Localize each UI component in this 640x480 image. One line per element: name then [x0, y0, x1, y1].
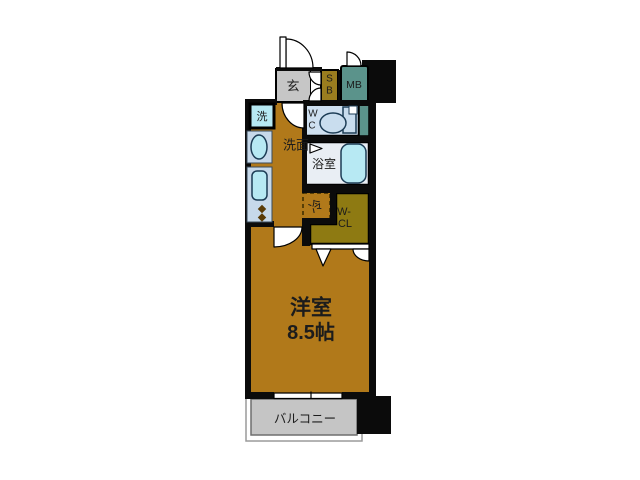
toilet-bowl — [320, 113, 346, 133]
wall-bottom-left — [245, 392, 274, 399]
meterbox-door-arc — [347, 52, 361, 66]
wall-fridge-right — [330, 193, 336, 220]
wall-wc-bath — [303, 136, 369, 142]
label-washroom: 洗面 — [283, 138, 309, 153]
closet-door-track — [312, 244, 369, 249]
black-block-bottom-right — [357, 396, 391, 434]
vanity-sink — [251, 135, 267, 159]
label-wc-c: C — [308, 121, 315, 132]
wall-right — [369, 102, 376, 399]
entrance-door-arc — [286, 39, 313, 68]
kitchen-sink — [252, 171, 267, 200]
toilet-flush-button — [349, 106, 357, 114]
wall-bath-bottom — [302, 185, 376, 193]
label-room-size: 8.5帖 — [287, 321, 335, 344]
label-closet-w: W- — [337, 206, 351, 218]
label-shoebox-s: S — [326, 74, 333, 85]
label-room-type: 洋室 — [290, 296, 332, 320]
bathtub — [341, 144, 366, 183]
label-wc-w: W — [308, 109, 318, 120]
label-washing-machine: 洗 — [257, 110, 268, 123]
label-entrance: 玄 — [286, 79, 299, 94]
label-bathroom: 浴室 — [312, 156, 336, 171]
label-meter-box: MB — [346, 79, 362, 91]
floorplan-image: 玄 S B MB 洗 洗面 W C 浴室 冷 W- CL 洋室 8.5帖 バルコ… — [0, 0, 640, 480]
label-closet-cl: CL — [338, 218, 352, 230]
pipe-shaft — [359, 103, 369, 136]
floorplan-canvas: 玄 S B MB 洗 洗面 W C 浴室 冷 W- CL 洋室 8.5帖 バルコ… — [0, 0, 640, 480]
entrance-door-leaf — [280, 37, 286, 68]
balcony-window — [274, 393, 342, 399]
wall-closet-left — [302, 218, 310, 246]
label-shoebox-b: B — [326, 86, 333, 97]
label-balcony: バルコニー — [274, 412, 336, 426]
